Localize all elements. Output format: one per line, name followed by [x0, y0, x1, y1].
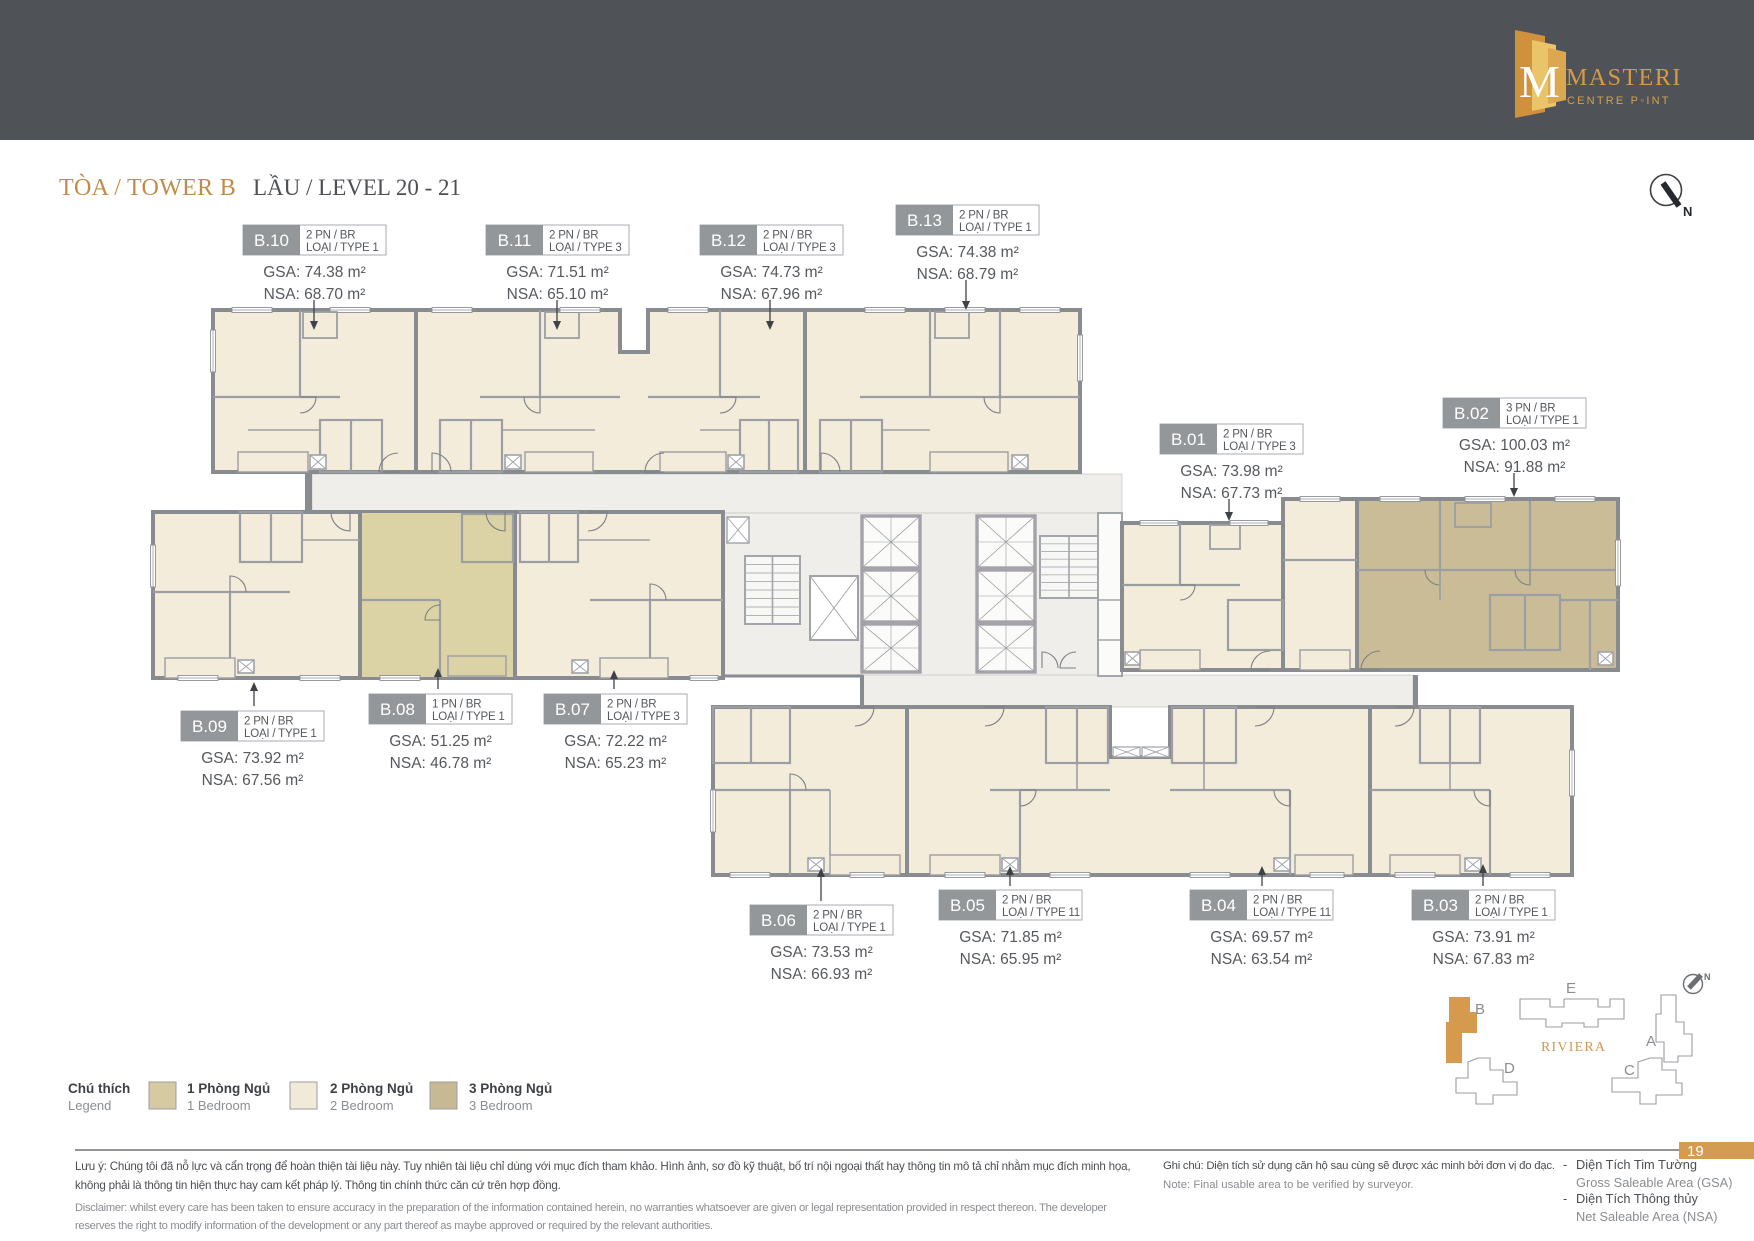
svg-text:B.06: B.06 [761, 911, 796, 930]
svg-text:2 PN / BR: 2 PN / BR [549, 230, 598, 242]
svg-text:NSA: 66.93 m²: NSA: 66.93 m² [771, 966, 873, 983]
svg-text:GSA: 100.03 m²: GSA: 100.03 m² [1459, 437, 1570, 454]
svg-text:RIVIERA: RIVIERA [1541, 1040, 1606, 1055]
svg-text:LOẠI / TYPE 3: LOẠI / TYPE 3 [1223, 441, 1296, 453]
svg-text:GSA: 73.53 m²: GSA: 73.53 m² [770, 944, 873, 961]
svg-text:B.01: B.01 [1171, 430, 1206, 449]
svg-text:1 PN / BR: 1 PN / BR [432, 699, 481, 711]
svg-text:LOẠI / TYPE 1: LOẠI / TYPE 1 [306, 242, 379, 254]
svg-text:GSA: 74.38 m²: GSA: 74.38 m² [916, 244, 1019, 261]
svg-text:NSA: 67.96 m²: NSA: 67.96 m² [721, 286, 823, 303]
svg-text:E: E [1566, 980, 1576, 997]
svg-text:LOẠI / TYPE 1: LOẠI / TYPE 1 [432, 711, 505, 723]
svg-text:2 Phòng Ngủ: 2 Phòng Ngủ [330, 1081, 413, 1096]
svg-text:LOẠI / TYPE 1: LOẠI / TYPE 1 [813, 922, 886, 934]
svg-text:GSA: 74.38 m²: GSA: 74.38 m² [263, 264, 366, 281]
svg-text:B.11: B.11 [498, 231, 532, 250]
svg-text:2 PN / BR: 2 PN / BR [1253, 895, 1302, 907]
svg-text:GSA: 71.51 m²: GSA: 71.51 m² [506, 264, 609, 281]
svg-text:B.04: B.04 [1201, 896, 1236, 915]
svg-text:2 Bedroom: 2 Bedroom [330, 1098, 394, 1113]
svg-text:TÒA / TOWER B: TÒA / TOWER B [59, 174, 236, 201]
svg-text:LẦU / LEVEL 20 - 21: LẦU / LEVEL 20 - 21 [253, 174, 461, 200]
svg-text:Gross Saleable Area (GSA): Gross Saleable Area (GSA) [1576, 1175, 1732, 1190]
svg-text:GSA: 51.25 m²: GSA: 51.25 m² [389, 733, 492, 750]
svg-text:B.08: B.08 [380, 700, 415, 719]
svg-text:2 PN / BR: 2 PN / BR [813, 910, 862, 922]
svg-text:1 Phòng Ngủ: 1 Phòng Ngủ [187, 1081, 270, 1096]
svg-text:B: B [1475, 1001, 1485, 1018]
svg-text:Net Saleable Area (NSA): Net Saleable Area (NSA) [1576, 1209, 1718, 1224]
svg-text:LOẠI / TYPE 11: LOẠI / TYPE 11 [1253, 907, 1331, 919]
svg-text:Diện Tích Thông thủy: Diện Tích Thông thủy [1576, 1191, 1698, 1206]
svg-text:2 PN / BR: 2 PN / BR [244, 716, 293, 728]
svg-text:không phải là thông tin hiện t: không phải là thông tin hiện thực hay ca… [75, 1179, 561, 1192]
svg-text:MASTERI: MASTERI [1566, 65, 1682, 91]
svg-text:GSA: 72.22 m²: GSA: 72.22 m² [564, 733, 667, 750]
svg-text:B.09: B.09 [192, 717, 227, 736]
svg-text:NSA: 46.78 m²: NSA: 46.78 m² [390, 755, 492, 772]
svg-text:3 Bedroom: 3 Bedroom [469, 1098, 533, 1113]
svg-text:3 Phòng Ngủ: 3 Phòng Ngủ [469, 1081, 552, 1096]
svg-text:B.13: B.13 [907, 211, 942, 230]
svg-text:2 PN / BR: 2 PN / BR [607, 699, 656, 711]
svg-text:N: N [1704, 972, 1711, 982]
svg-text:NSA: 67.83 m²: NSA: 67.83 m² [1433, 951, 1535, 968]
svg-text:B.07: B.07 [555, 700, 590, 719]
svg-text:GSA: 74.73 m²: GSA: 74.73 m² [720, 264, 823, 281]
svg-text:2 PN / BR: 2 PN / BR [1475, 895, 1524, 907]
svg-text:NSA: 67.73 m²: NSA: 67.73 m² [1181, 485, 1283, 502]
svg-text:3 PN / BR: 3 PN / BR [1506, 403, 1555, 415]
svg-text:reserves the right to modify i: reserves the right to modify information… [75, 1220, 713, 1232]
svg-text:Chú thích: Chú thích [68, 1081, 130, 1096]
svg-text:LOẠI / TYPE 3: LOẠI / TYPE 3 [607, 711, 680, 723]
svg-text:B.12: B.12 [711, 231, 746, 250]
svg-text:D: D [1504, 1060, 1515, 1077]
svg-text:NSA: 68.79 m²: NSA: 68.79 m² [917, 266, 1019, 283]
svg-text:2 PN / BR: 2 PN / BR [306, 230, 355, 242]
svg-text:GSA: 73.98 m²: GSA: 73.98 m² [1180, 463, 1283, 480]
svg-text:Ghi chú: Diện tích sử dụng căn: Ghi chú: Diện tích sử dụng căn hộ sau cù… [1163, 1160, 1555, 1172]
svg-text:N: N [1683, 204, 1692, 219]
svg-text:LOẠI / TYPE 1: LOẠI / TYPE 1 [244, 728, 317, 740]
svg-text:LOẠI / TYPE 3: LOẠI / TYPE 3 [763, 242, 836, 254]
svg-text:LOẠI / TYPE 1: LOẠI / TYPE 1 [1506, 415, 1579, 427]
svg-text:2 PN / BR: 2 PN / BR [959, 210, 1008, 222]
svg-text:B.03: B.03 [1423, 896, 1458, 915]
svg-text:2 PN / BR: 2 PN / BR [763, 230, 812, 242]
svg-text:Diện Tích Tim Tường: Diện Tích Tim Tường [1576, 1157, 1697, 1172]
svg-text:GSA: 73.92 m²: GSA: 73.92 m² [201, 750, 304, 767]
svg-text:NSA: 91.88 m²: NSA: 91.88 m² [1464, 459, 1566, 476]
svg-text:Disclaimer: whilst every care: Disclaimer: whilst every care has been t… [75, 1202, 1107, 1214]
svg-text:-: - [1563, 1191, 1567, 1206]
svg-text:LOẠI / TYPE 11: LOẠI / TYPE 11 [1002, 907, 1080, 919]
svg-text:LOẠI / TYPE 1: LOẠI / TYPE 1 [959, 222, 1032, 234]
svg-text:Lưu ý: Chúng tôi đã nỗ lực và: Lưu ý: Chúng tôi đã nỗ lực và cẩn trọng … [75, 1160, 1130, 1173]
svg-text:B.10: B.10 [254, 231, 289, 250]
svg-text:NSA: 65.95 m²: NSA: 65.95 m² [960, 951, 1062, 968]
svg-text:2 PN / BR: 2 PN / BR [1223, 429, 1272, 441]
svg-text:LOẠI / TYPE 3: LOẠI / TYPE 3 [549, 242, 622, 254]
svg-text:NSA: 65.10 m²: NSA: 65.10 m² [507, 286, 609, 303]
svg-text:-: - [1563, 1157, 1567, 1172]
svg-text:C: C [1624, 1062, 1635, 1079]
svg-text:B.02: B.02 [1454, 404, 1489, 423]
svg-text:NSA: 63.54 m²: NSA: 63.54 m² [1211, 951, 1313, 968]
svg-text:Note: Final usable area to be: Note: Final usable area to be verified b… [1163, 1179, 1414, 1191]
svg-text:GSA: 73.91 m²: GSA: 73.91 m² [1432, 929, 1535, 946]
svg-text:NSA: 65.23 m²: NSA: 65.23 m² [565, 755, 667, 772]
svg-text:NSA: 68.70 m²: NSA: 68.70 m² [264, 286, 366, 303]
svg-text:GSA: 69.57 m²: GSA: 69.57 m² [1210, 929, 1313, 946]
svg-text:LOẠI / TYPE 1: LOẠI / TYPE 1 [1475, 907, 1548, 919]
svg-text:GSA: 71.85 m²: GSA: 71.85 m² [959, 929, 1062, 946]
svg-text:B.05: B.05 [950, 896, 985, 915]
svg-text:CENTRE P◦INT: CENTRE P◦INT [1567, 95, 1671, 107]
svg-text:NSA: 67.56 m²: NSA: 67.56 m² [202, 772, 304, 789]
svg-text:M: M [1519, 56, 1560, 107]
svg-text:A: A [1646, 1033, 1656, 1050]
svg-text:Legend: Legend [68, 1098, 111, 1113]
svg-text:2 PN / BR: 2 PN / BR [1002, 895, 1051, 907]
svg-text:1 Bedroom: 1 Bedroom [187, 1098, 251, 1113]
